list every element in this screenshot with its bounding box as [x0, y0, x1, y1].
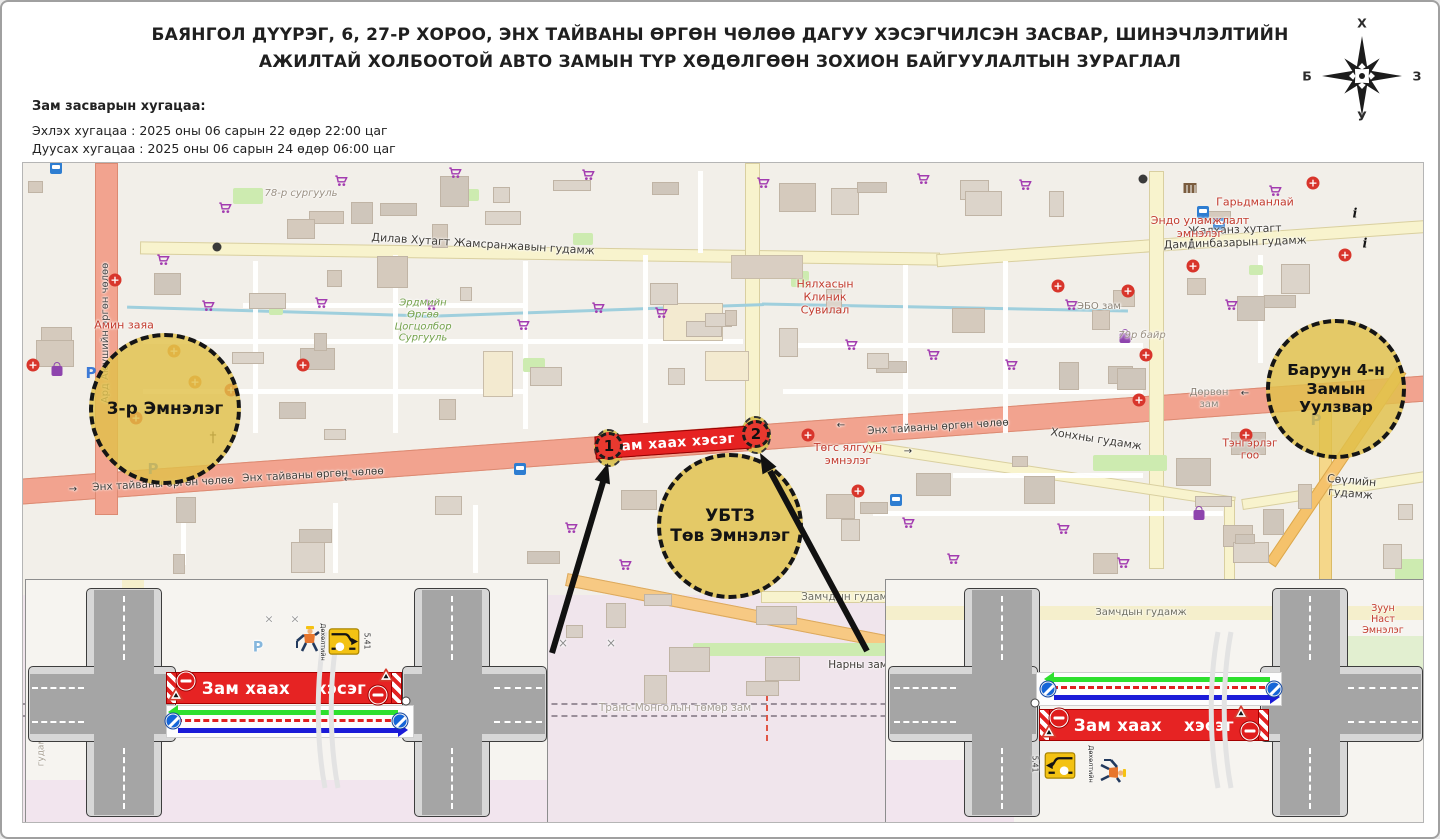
- cart-glyph: [619, 559, 632, 572]
- shopping-cart-icon: [335, 175, 348, 188]
- hospital-cross-icon: +: [1339, 249, 1352, 262]
- cart-glyph: [947, 553, 960, 566]
- building: [1195, 496, 1232, 506]
- building: [173, 554, 185, 573]
- schedule-heading: Зам засварын хугацаа:: [32, 98, 396, 117]
- boundary-dot: [402, 697, 411, 706]
- shopping-cart-icon: [219, 202, 232, 215]
- shopping-cart-icon: [592, 302, 605, 315]
- shop-bag-icon: [1120, 333, 1131, 343]
- building: [965, 191, 1002, 215]
- building: [566, 625, 583, 638]
- minor-road: [333, 503, 338, 573]
- cart-glyph: [1269, 185, 1282, 198]
- building: [831, 188, 859, 215]
- cart-glyph: [1005, 359, 1018, 372]
- closure-band-label: хэсэг: [1184, 716, 1234, 735]
- cart-glyph: [157, 254, 170, 267]
- cart-glyph: [335, 175, 348, 188]
- building: [232, 352, 263, 364]
- green-area: [573, 233, 593, 245]
- cart-glyph: [845, 339, 858, 352]
- shopping-cart-icon: [845, 339, 858, 352]
- cart-glyph: [1065, 299, 1078, 312]
- open-lane-arrow-east: [178, 728, 398, 733]
- building: [725, 310, 737, 325]
- cart-glyph: [565, 522, 578, 535]
- cart-glyph: [1019, 179, 1032, 192]
- shopping-cart-icon: [1065, 299, 1078, 312]
- road-asphalt: [890, 674, 1036, 734]
- closure-detail-inset-2: Замчдын гудамжЗуун Наст ЭмнэлэггудамжЗам…: [885, 579, 1424, 823]
- building: [279, 402, 305, 418]
- schedule-start: Эхлэх хугацаа : 2025 оны 06 сарын 22 өдө…: [32, 122, 396, 140]
- building: [530, 367, 562, 387]
- road-worker-icon: [294, 625, 320, 653]
- roadworks-warning-icon: [379, 669, 394, 682]
- shopping-cart-icon: [655, 307, 668, 320]
- road-asphalt: [30, 674, 174, 734]
- museum-icon: [1184, 183, 1197, 193]
- roadworks-warning-icon: [1042, 725, 1057, 738]
- building: [327, 270, 342, 287]
- shopping-cart-icon: [1057, 523, 1070, 536]
- building: [779, 183, 815, 212]
- hospital-cross-icon: +: [802, 429, 815, 442]
- cart-glyph: [202, 300, 215, 313]
- lane-direction-sign-icon: [393, 714, 408, 729]
- bus-stop-icon: [50, 162, 62, 174]
- shopping-cart-icon: [757, 177, 770, 190]
- detour-sign: [1044, 752, 1076, 783]
- building: [1298, 484, 1312, 509]
- shopping-cart-icon: [315, 297, 328, 310]
- lane-direction-sign-icon: [1267, 682, 1282, 697]
- lane-marking: [894, 721, 956, 723]
- lane-marking: [494, 721, 542, 723]
- hospital-cross-icon: +: [1307, 177, 1320, 190]
- cart-glyph: [592, 302, 605, 315]
- building: [485, 211, 521, 224]
- no-entry-sign-icon: [369, 686, 388, 705]
- lane-marking: [1309, 596, 1311, 660]
- building: [380, 203, 418, 216]
- lane-marking: [1001, 748, 1003, 809]
- building: [527, 551, 560, 564]
- shopping-cart-icon: [517, 319, 530, 332]
- jalkhanz-street-road: [936, 219, 1424, 266]
- lane-marking: [451, 748, 453, 809]
- roadworks-warning-sign: [169, 686, 184, 705]
- info-icon: i: [1363, 237, 1368, 252]
- lane-marking: [1001, 596, 1003, 660]
- barrier-stripe: [1258, 709, 1269, 741]
- building: [1398, 504, 1413, 520]
- building: [1024, 476, 1056, 503]
- shopping-cart-icon: [449, 167, 462, 180]
- building: [765, 657, 800, 681]
- lane-marking: [1309, 748, 1311, 809]
- building: [779, 328, 798, 357]
- building: [860, 502, 889, 513]
- green-area: [233, 188, 263, 204]
- building: [314, 333, 327, 351]
- building: [1176, 458, 1210, 486]
- roadworks-warning-sign: [1042, 723, 1057, 742]
- cart-glyph: [757, 177, 770, 190]
- building: [1264, 295, 1296, 308]
- minor-road: [698, 171, 703, 253]
- closure-band-label: хэсэг: [316, 679, 366, 698]
- building: [154, 273, 181, 295]
- building: [857, 182, 887, 194]
- building: [952, 308, 986, 333]
- lane-marking: [32, 721, 84, 723]
- building: [249, 293, 285, 309]
- building: [291, 542, 326, 573]
- building: [324, 429, 347, 440]
- page-title: БАЯНГОЛ ДҮҮРЭГ, 6, 27-Р ХОРОО, ЭНХ ТАЙВА…: [2, 22, 1438, 76]
- minor-road: [873, 511, 1223, 516]
- roadworks-warning-sign: [1234, 704, 1249, 723]
- title-line-1: БАЯНГОЛ ДҮҮРЭГ, 6, 27-Р ХОРОО, ЭНХ ТАЙВА…: [2, 22, 1438, 49]
- closure-band-label: Зам хаах: [202, 679, 290, 698]
- cart-glyph: [927, 349, 940, 362]
- schedule-end: Дуусах хугацаа : 2025 оны 06 сарын 24 өд…: [32, 140, 396, 158]
- lane-marking: [451, 596, 453, 660]
- compass-rose: Х З У Б: [1297, 12, 1427, 124]
- bus-stop-icon: [514, 463, 526, 475]
- shopping-cart-icon: [1269, 185, 1282, 198]
- building: [916, 473, 951, 496]
- hospital-cross-icon: +: [27, 359, 40, 372]
- cart-glyph: [1117, 557, 1130, 570]
- traffic-signal-icon: [213, 243, 222, 252]
- shopping-cart-icon: [565, 522, 578, 535]
- bus-stop-icon: [890, 494, 902, 506]
- lane-marking: [1348, 687, 1418, 689]
- shopping-cart-icon: [1005, 359, 1018, 372]
- hospital-cross-icon: +: [1052, 280, 1065, 293]
- cart-glyph: [315, 297, 328, 310]
- shopping-cart-icon: [425, 299, 438, 312]
- open-lane-arrow-west: [178, 710, 398, 715]
- cart-glyph: [219, 202, 232, 215]
- map-canvas: 3-р Эмнэлэг УБТЗ Төв Эмнэлэг Баруун 4-н …: [22, 162, 1424, 823]
- highlight-circle-label: 3-р Эмнэлэг: [107, 399, 224, 419]
- building: [705, 351, 749, 381]
- map-label: ×: [264, 614, 273, 627]
- highlight-circle-ubtz-hospital: УБТЗ Төв Эмнэлэг: [657, 453, 803, 599]
- cart-glyph: [1057, 523, 1070, 536]
- highlight-circle-label: Баруун 4-н Замын Уулзвар: [1287, 361, 1385, 417]
- roadworks-warning-sign: [379, 667, 394, 686]
- hospital-cross-icon: +: [1122, 285, 1135, 298]
- boundary-dot: [1031, 699, 1040, 708]
- shopping-cart-icon: [902, 517, 915, 530]
- shopping-cart-icon: [1019, 179, 1032, 192]
- minor-road: [143, 339, 743, 344]
- map-label: Хонхны гудамж: [1049, 426, 1142, 453]
- compass-south-label: У: [1357, 109, 1367, 124]
- detour-sign-icon: [1044, 752, 1076, 779]
- shopping-cart-icon: [582, 169, 595, 182]
- building: [1233, 542, 1269, 563]
- lane-marking: [123, 748, 125, 809]
- building: [841, 519, 860, 542]
- shop-bag-icon: [52, 366, 63, 376]
- building: [1263, 509, 1284, 535]
- building: [287, 219, 315, 239]
- traffic-signal-icon: [1139, 175, 1148, 184]
- building: [1059, 362, 1078, 389]
- dilav-street-road: [140, 241, 940, 265]
- hospital-cross-icon: +: [1133, 394, 1146, 407]
- cart-glyph: [1225, 299, 1238, 312]
- lane-direction-sign-icon: [1041, 682, 1056, 697]
- green-area: [1249, 265, 1263, 275]
- lane-marking: [494, 687, 542, 689]
- building: [668, 368, 686, 385]
- compass-star-icon: [1320, 34, 1404, 118]
- map-label: P: [253, 640, 263, 657]
- shopping-cart-icon: [1225, 299, 1238, 312]
- cart-glyph: [902, 517, 915, 530]
- building: [432, 224, 448, 249]
- map-label: 78-р сургууль: [265, 188, 338, 200]
- hospital-cross-icon: +: [1140, 349, 1153, 362]
- cart-glyph: [517, 319, 530, 332]
- building: [460, 287, 472, 301]
- lane-direction-sign-icon: [166, 714, 181, 729]
- building: [1187, 278, 1206, 294]
- minor-road: [473, 505, 478, 573]
- building: [1383, 544, 1401, 569]
- hospital-cross-icon: +: [1187, 260, 1200, 273]
- building: [731, 255, 803, 279]
- closure-marker-2: 2: [742, 420, 770, 448]
- cart-glyph: [449, 167, 462, 180]
- building: [606, 603, 626, 628]
- side-street-road: [1149, 171, 1164, 569]
- building: [1049, 191, 1063, 217]
- title-line-2: АЖИЛТАЙ ХОЛБООТОЙ АВТО ЗАМЫН ТҮР ХӨДӨЛГӨ…: [2, 49, 1438, 76]
- cart-glyph: [917, 173, 930, 186]
- building: [299, 529, 333, 543]
- closure-detail-inset-1: гудамжгудамжP××Зам хааххэсэгДөхөлтийн5.4…: [25, 579, 548, 823]
- shopping-cart-icon: [202, 300, 215, 313]
- road-worker-sign: [1095, 757, 1127, 783]
- side-street-road: [745, 163, 760, 441]
- building: [746, 681, 779, 696]
- building: [756, 606, 797, 625]
- cart-glyph: [425, 299, 438, 312]
- building: [351, 202, 373, 225]
- building: [377, 256, 408, 287]
- building: [867, 353, 888, 369]
- hospital-cross-icon: +: [109, 274, 122, 287]
- building: [493, 187, 510, 202]
- bus-stop-icon: [1213, 218, 1225, 230]
- closure-band-label: Зам хаах: [1074, 716, 1162, 735]
- building: [435, 496, 462, 515]
- highlight-circle-west-4-junction: Баруун 4-н Замын Уулзвар: [1266, 319, 1406, 459]
- cart-glyph: [582, 169, 595, 182]
- lane-marking: [1348, 721, 1418, 723]
- lane-divider-dashed: [176, 719, 400, 722]
- highlight-circle-hospital-3: 3-р Эмнэлэг: [89, 333, 241, 485]
- open-lane-arrow-east: [1054, 695, 1270, 700]
- lane-marking: [894, 687, 956, 689]
- highlight-circle-label: УБТЗ Төв Эмнэлэг: [670, 506, 790, 547]
- roadworks-warning-icon: [169, 688, 184, 701]
- shopping-cart-icon: [917, 173, 930, 186]
- compass-west-label: Б: [1302, 69, 1312, 84]
- minor-road: [783, 389, 1143, 394]
- road-asphalt: [404, 674, 545, 734]
- no-entry-sign-icon: [1241, 722, 1260, 741]
- hospital-cross-icon: +: [1240, 429, 1253, 442]
- building: [826, 289, 842, 312]
- bus-stop-icon: [1197, 206, 1209, 218]
- shopping-cart-icon: [947, 553, 960, 566]
- road-worker-sign: [294, 625, 320, 657]
- shopping-cart-icon: [619, 559, 632, 572]
- detour-sign: [328, 628, 360, 659]
- closure-section-band: Зам хааххэсэг: [166, 672, 402, 704]
- building: [644, 675, 667, 704]
- open-lane-arrow-west: [1054, 677, 1270, 682]
- info-icon: i: [1353, 207, 1358, 222]
- hospital-cross-icon: +: [297, 359, 310, 372]
- building: [28, 181, 43, 193]
- building: [1281, 264, 1310, 294]
- shop-bag-icon: [1194, 510, 1205, 520]
- building: [1237, 296, 1265, 321]
- roadworks-warning-icon: [1234, 706, 1249, 719]
- building: [652, 182, 679, 194]
- closure-marker-1: 1: [595, 432, 623, 460]
- shopping-cart-icon: [927, 349, 940, 362]
- green-area: [1093, 455, 1167, 471]
- road-worker-icon: [1099, 757, 1127, 783]
- building: [826, 494, 855, 519]
- minor-road: [783, 343, 1143, 348]
- hospital-cross-icon: +: [852, 485, 865, 498]
- building: [650, 283, 677, 305]
- map-label: 5.41: [362, 633, 371, 650]
- building: [1235, 534, 1255, 544]
- lane-divider-dashed: [1052, 686, 1274, 689]
- repair-schedule: Зам засварын хугацаа: Эхлэх хугацаа : 20…: [32, 98, 396, 158]
- building: [1117, 368, 1146, 390]
- building: [176, 497, 196, 522]
- compass-east-label: З: [1413, 69, 1422, 84]
- building: [1093, 553, 1118, 575]
- lane-marking: [32, 687, 84, 689]
- minor-road: [903, 265, 908, 433]
- road-asphalt: [1262, 674, 1421, 734]
- building: [483, 351, 513, 397]
- cart-glyph: [655, 307, 668, 320]
- traffic-plan-page: БАЯНГОЛ ДҮҮРЭГ, 6, 27-Р ХОРОО, ЭНХ ТАЙВА…: [0, 0, 1440, 839]
- building: [669, 647, 711, 672]
- map-label: Гарьдманлай: [1216, 197, 1294, 210]
- shopping-cart-icon: [157, 254, 170, 267]
- building: [1012, 456, 1028, 467]
- info-icon: i: [1189, 238, 1194, 253]
- building: [440, 176, 470, 207]
- compass-north-label: Х: [1357, 16, 1367, 31]
- shopping-cart-icon: [1117, 557, 1130, 570]
- detour-sign-icon: [328, 628, 360, 655]
- map-label: Дөхөлтийн: [1086, 745, 1094, 783]
- building: [1092, 310, 1110, 330]
- building: [621, 490, 656, 510]
- minor-road: [253, 261, 258, 433]
- lane-marking: [123, 596, 125, 660]
- minor-road: [523, 261, 528, 429]
- building: [439, 399, 456, 419]
- building: [644, 594, 671, 606]
